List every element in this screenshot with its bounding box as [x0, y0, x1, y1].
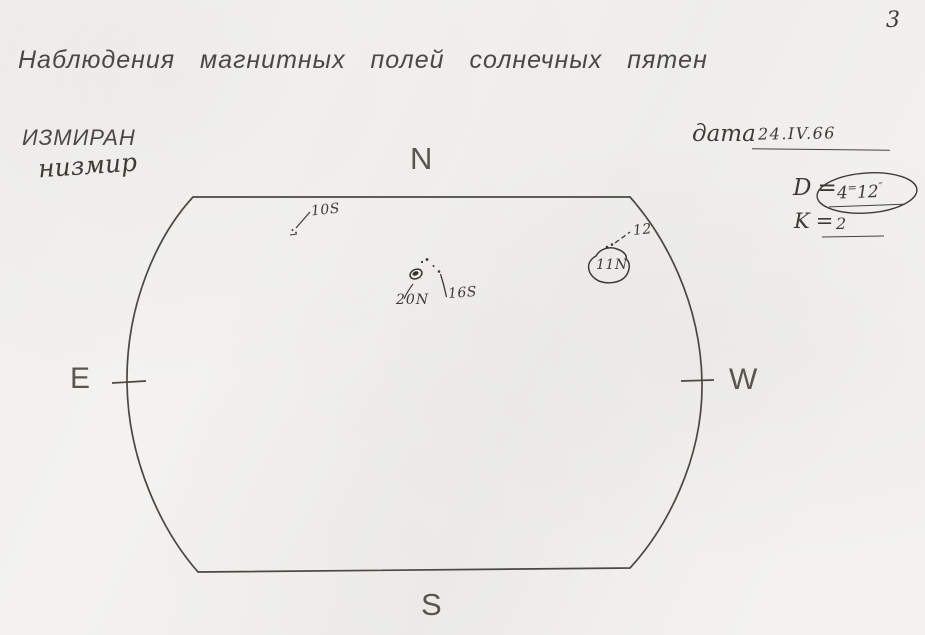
scanned-observation-sheet: 3 Наблюдения магнитных полей солнечных п…: [0, 0, 925, 635]
equals-sign: =: [816, 209, 834, 233]
central-sunspot-pores: [421, 258, 440, 273]
k-value: 2: [836, 214, 846, 233]
diameter-value-prime-mark: =: [847, 181, 857, 194]
page-number: 3: [886, 8, 900, 33]
k-index-field: K=: [794, 209, 833, 233]
sunspot-label-20n: 20N: [396, 292, 429, 308]
east-tick-mark: [112, 381, 146, 383]
sunspot-10s-pointer: [296, 212, 310, 228]
sunspot-label-16s: 16S: [447, 284, 477, 302]
diameter-label: D: [793, 175, 811, 201]
diameter-value-arcmin: 4: [837, 183, 849, 203]
sunspot-10s-mark: [290, 229, 297, 235]
west-tick-mark: [681, 380, 714, 381]
k-label: K: [794, 209, 810, 233]
equals-sign: =: [817, 175, 836, 201]
date-value: 24.IV.66: [758, 123, 836, 143]
solar-disk-outline: [127, 197, 702, 572]
document-title: Наблюдения магнитных полей солнечных пят…: [18, 46, 708, 75]
compass-west-label: W: [729, 363, 757, 397]
compass-south-label: S: [421, 587, 442, 623]
pointer-12-dashed: [615, 232, 630, 243]
diameter-value-arcsec: 12: [857, 182, 879, 203]
compass-east-label: E: [70, 362, 90, 396]
sunspot-label-11n: 11N: [596, 257, 628, 273]
sunspot-label-10s: 10S: [310, 201, 340, 220]
organization-name: ИЗМИРАН: [22, 125, 136, 151]
diameter-field: D=: [793, 175, 837, 201]
compass-north-label: N: [410, 141, 432, 177]
diameter-value-second-mark: ″: [878, 180, 883, 193]
sunspot-label-12: 12: [632, 221, 652, 239]
diameter-value: 4=12″: [837, 180, 884, 203]
pointer-16s: [441, 274, 447, 297]
date-label: дата: [692, 121, 756, 147]
solar-disk-drawing: [0, 0, 925, 635]
